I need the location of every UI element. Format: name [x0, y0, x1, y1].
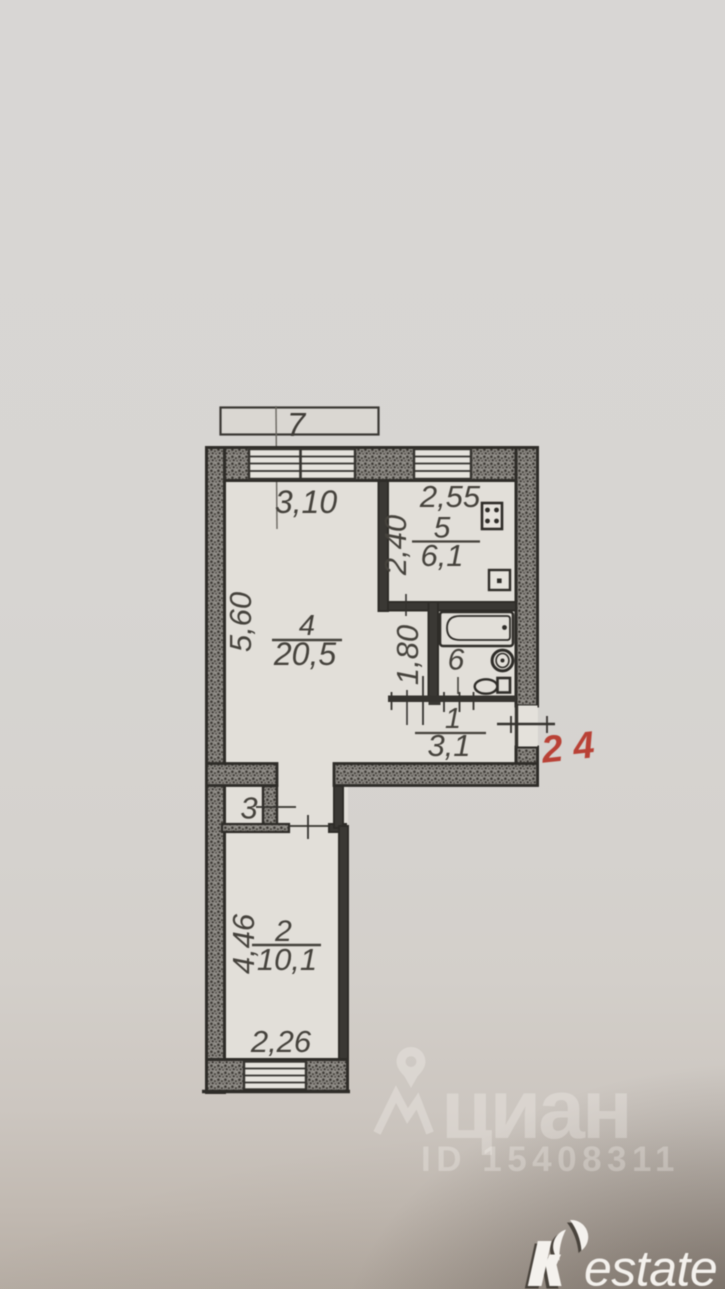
svg-text:estate: estate — [584, 1241, 717, 1289]
